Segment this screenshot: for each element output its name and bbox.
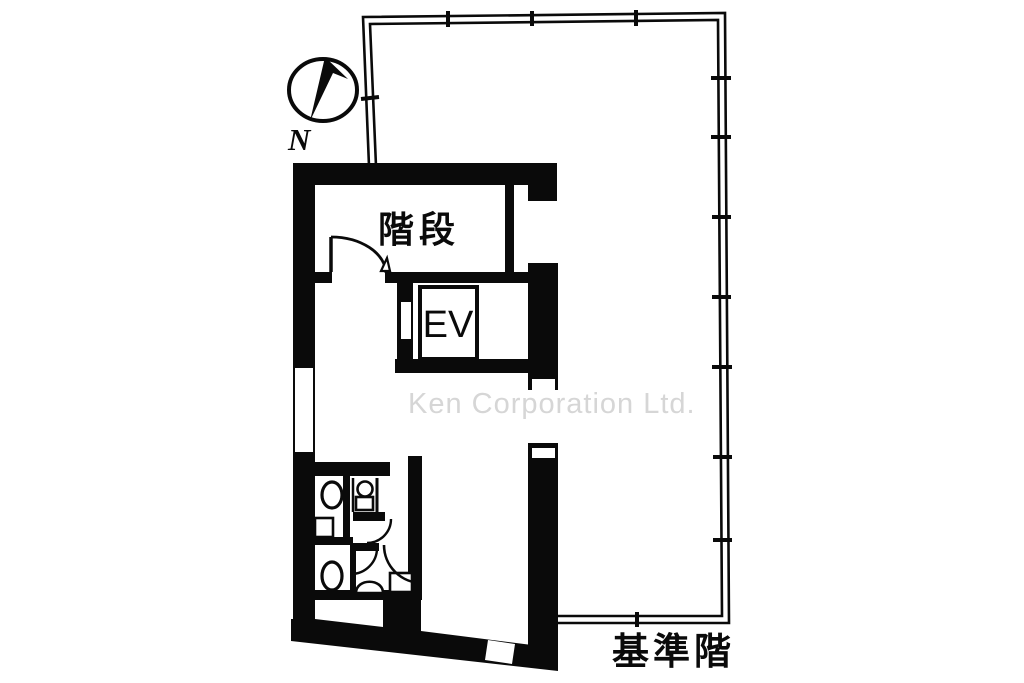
toilet-tank [356,497,373,510]
toilet-fixtures [313,476,422,593]
wall-top [293,163,557,185]
ev-door-opening [401,302,411,339]
ev-right-wall-notch [532,379,555,390]
elevator-shaft: EV [420,287,477,359]
left-wall-window-opening [295,368,313,452]
door-swing-arc [367,519,391,543]
wall-toilet-top [305,462,390,476]
wall-stair-bottom-left [315,272,332,283]
stall-partition [350,543,356,593]
lower-right-wall-notch [532,448,555,458]
stair-room: 階段 [331,209,460,273]
elevator-label: EV [423,304,474,346]
wall-stair-right [505,185,514,283]
sink [315,518,333,537]
north-label: N [287,122,312,157]
stall-partition [353,512,385,521]
stair-label: 階段 [378,209,460,250]
toilet-bowl-round [358,482,373,497]
bottom-wall-door-opening [485,640,515,664]
toilet-bowl [322,482,342,508]
wall-stair-bottom-right [385,272,532,283]
floor-plan-page: Ken Corporation Ltd. [0,0,1024,683]
wall-lower-right [528,443,558,662]
wall-top-right-step [528,184,557,201]
wall-ev-right [528,263,558,390]
north-compass: N [287,57,357,157]
toilet-bowl [322,562,342,590]
floor-caption: 基準階 [612,631,735,672]
urinal [356,582,383,593]
wall-bottom-slanted [291,592,558,671]
floor-plan-drawing: Ken Corporation Ltd. [0,0,1024,683]
stall-partition [343,476,350,542]
watermark-text: Ken Corporation Ltd. [408,388,696,420]
